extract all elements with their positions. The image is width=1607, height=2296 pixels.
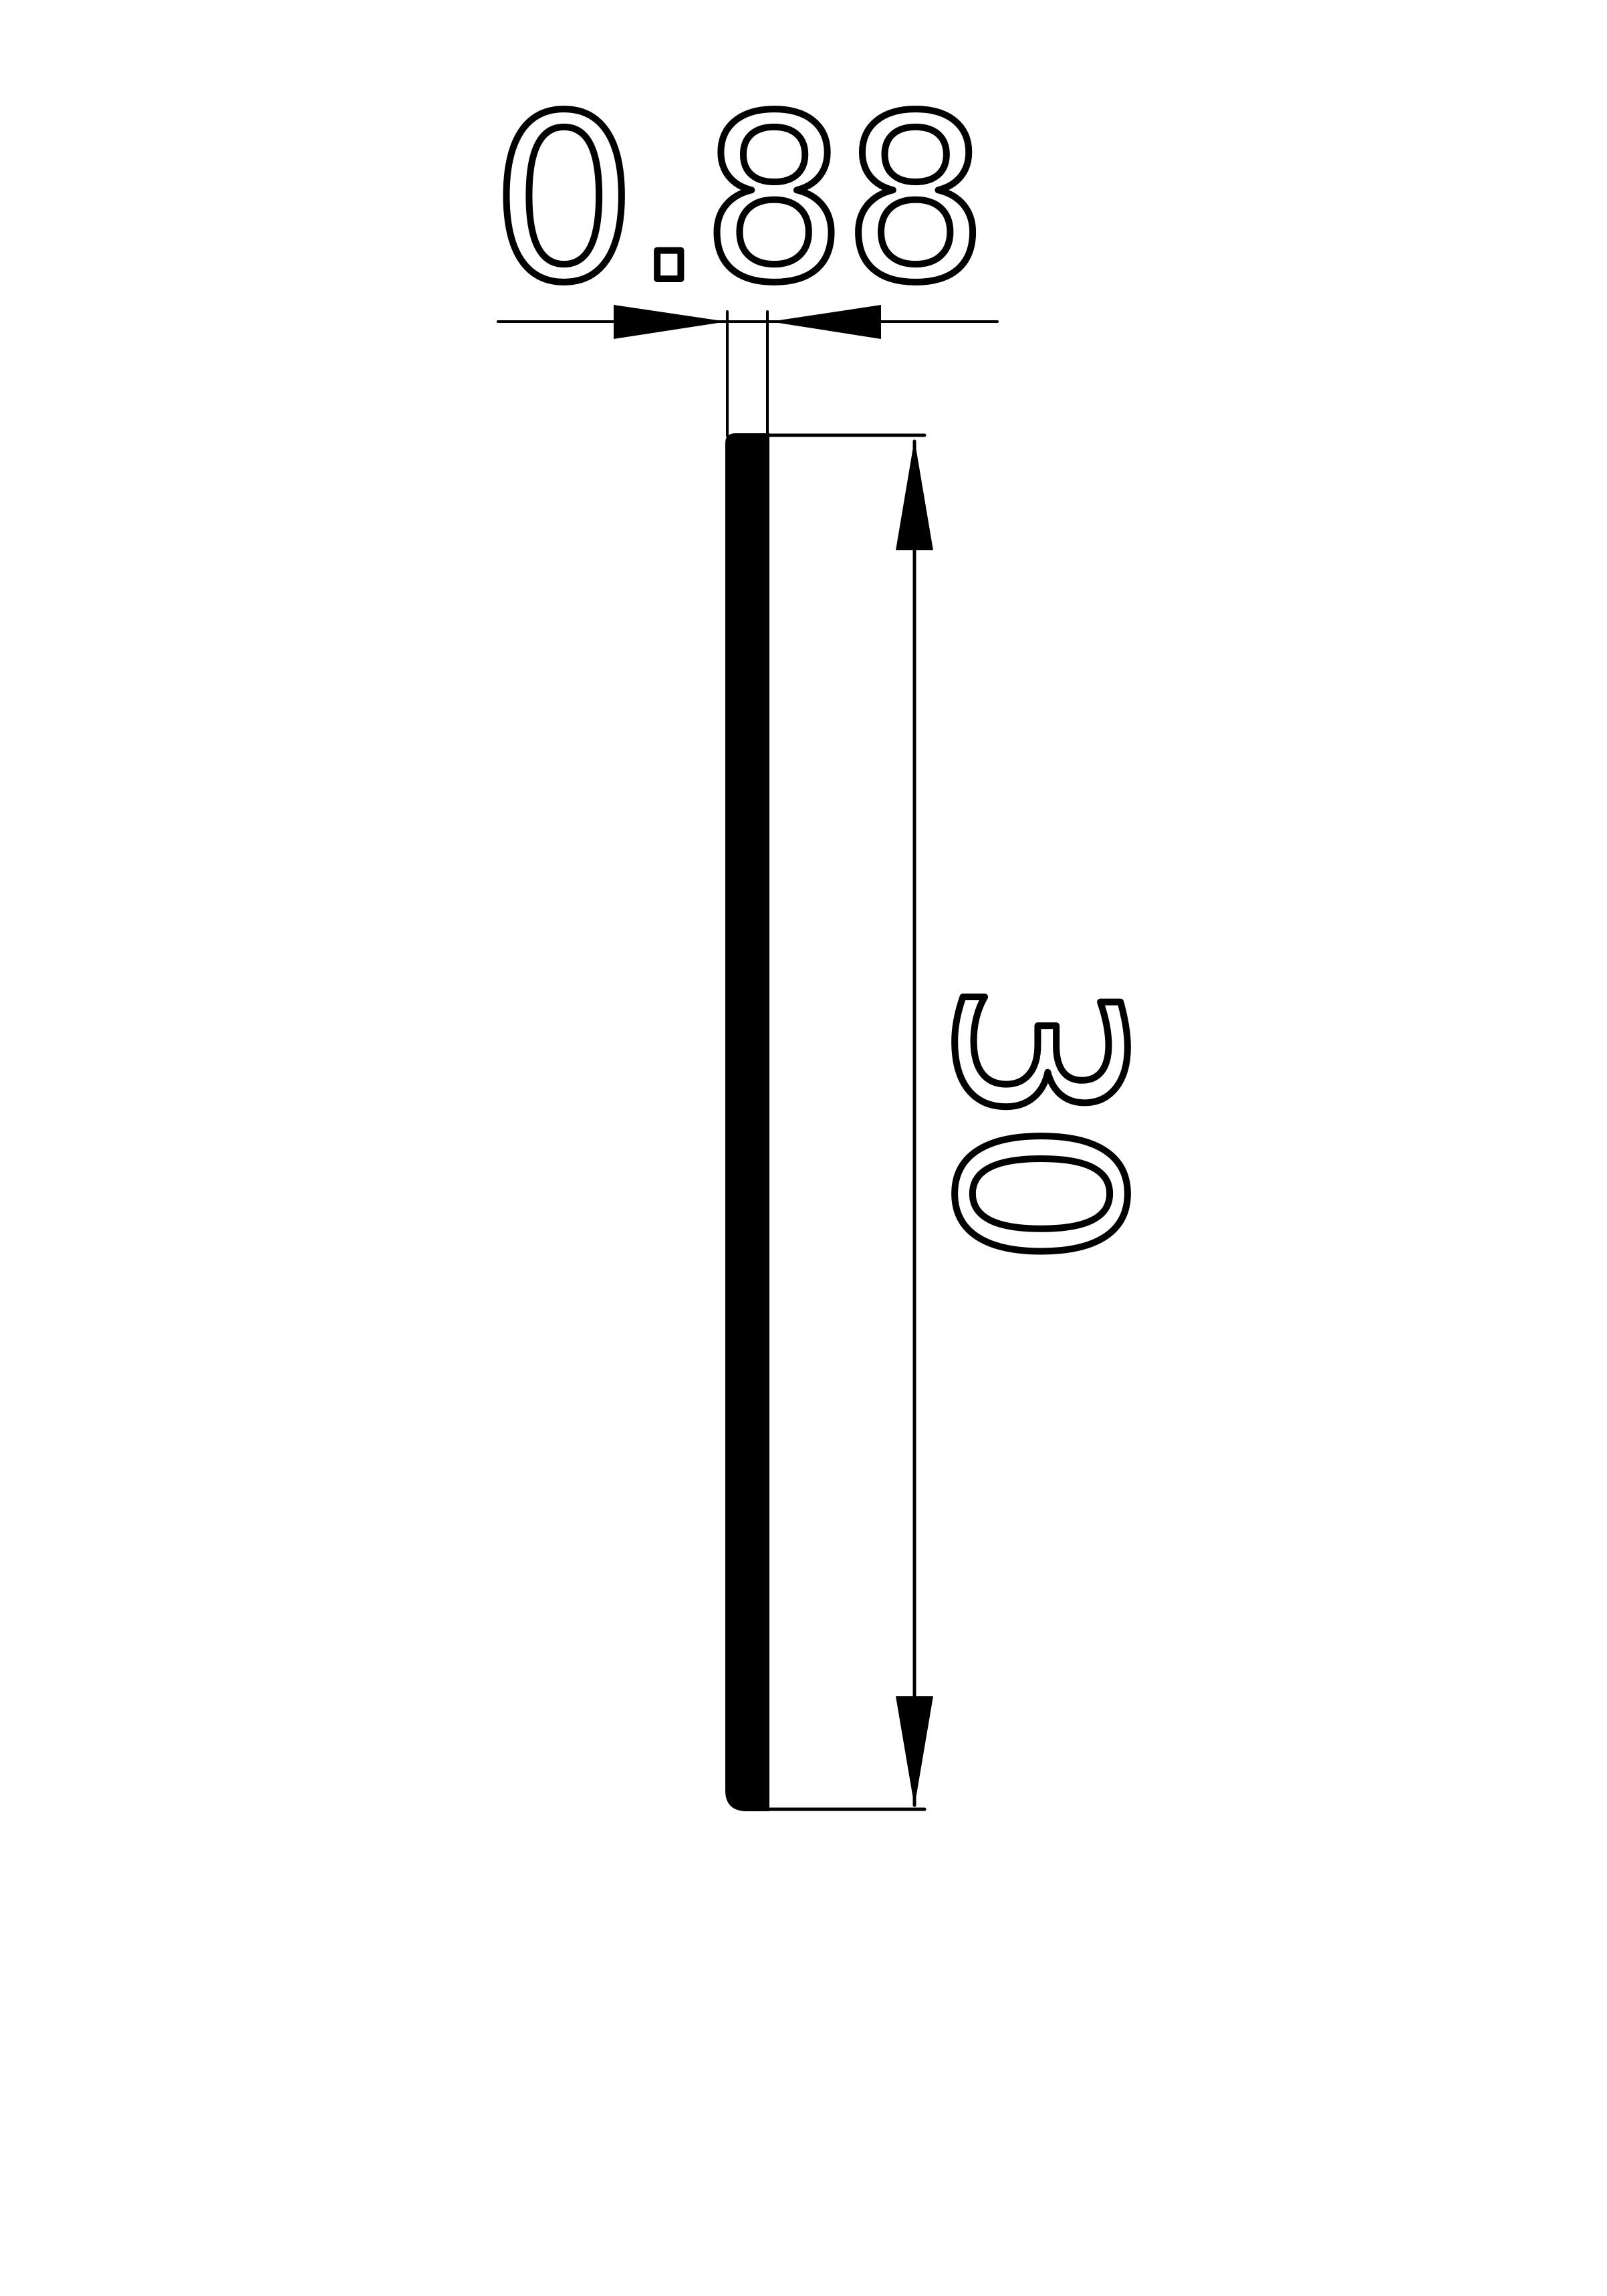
technical-drawing-canvas: 0.88 30: [0, 0, 1607, 2296]
profile-bar: [725, 433, 769, 1811]
filled-shapes-group: [614, 305, 933, 1811]
height-dimension-label: 30: [904, 980, 1170, 1262]
dimension-labels-group: 0.88 30: [491, 67, 1170, 1262]
dimension-drawing-svg: 0.88 30: [0, 0, 1607, 2296]
width-dimension-label: 0.88: [491, 67, 984, 333]
